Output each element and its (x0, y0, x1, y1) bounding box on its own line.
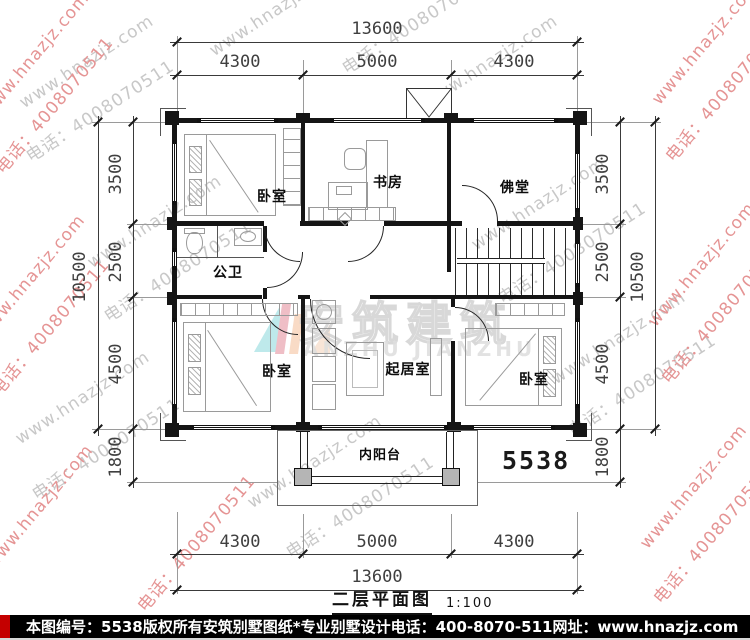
dim-line-right-total (655, 116, 656, 436)
dim-label: 4300 (190, 533, 290, 551)
footer-copyright: 版权所有 (143, 616, 203, 637)
wardrobe (495, 303, 565, 316)
eave-mark (160, 413, 161, 441)
window (575, 240, 580, 287)
window (172, 248, 177, 270)
corner-pier (165, 423, 179, 437)
footer-accent-strip (0, 615, 10, 638)
dim-line-left-segments (133, 116, 134, 488)
wall-hallway-bottom (370, 295, 580, 299)
toilet (186, 232, 203, 254)
wall-hallway-top (172, 221, 264, 226)
wall-pier (296, 113, 310, 123)
wall-bedroom2-living (301, 299, 305, 425)
pillow (543, 336, 556, 364)
corner-pier (165, 111, 179, 125)
eave-mark (160, 108, 161, 136)
door-arc-study (348, 226, 384, 262)
dim-label: 3500 (107, 139, 125, 209)
wall-stair-top (497, 221, 580, 226)
dim-label: 1800 (107, 422, 125, 492)
dim-line-right-segments (620, 116, 621, 488)
room-label-buddhist-hall: 佛堂 (485, 180, 545, 196)
balcony-column (442, 468, 460, 486)
bed-line (205, 322, 206, 412)
room-label-bedroom2: 卧室 (247, 364, 307, 380)
extension-line (303, 60, 304, 116)
window (575, 318, 580, 408)
chair (344, 148, 366, 170)
dim-label: 5000 (327, 533, 427, 551)
dim-label: 4500 (107, 329, 125, 399)
dim-label: 5000 (327, 53, 427, 71)
sofa-seat (312, 384, 336, 410)
dim-label-left-total: 10500 (71, 242, 89, 312)
bed-line (538, 328, 539, 406)
room-label-bathroom: 公卫 (198, 265, 258, 281)
drawing-scale: 1:100 (446, 596, 493, 615)
wall-pier (444, 113, 458, 123)
room-label-balcony: 内阳台 (350, 448, 410, 464)
dim-line-bottom-segments (170, 554, 584, 555)
corner-pier (573, 423, 587, 437)
stair-handrail (457, 258, 545, 264)
plan-number: 5538 (502, 446, 568, 475)
dim-line-top-segments (170, 75, 584, 76)
wall-living-bedroom3 (451, 299, 455, 307)
sink (240, 231, 256, 242)
dim-label: 4300 (464, 53, 564, 71)
balcony-railing (310, 476, 444, 484)
dim-label-right-total: 10500 (629, 242, 647, 312)
toilet-tank (184, 228, 205, 234)
dim-label: 3500 (594, 139, 612, 209)
window (172, 140, 177, 205)
bathroom-partition (217, 226, 218, 258)
dim-label: 4500 (594, 329, 612, 399)
wall-bedroom1-study (301, 123, 305, 226)
sofa-seat (312, 356, 336, 382)
dim-label-top-total: 13600 (327, 20, 427, 38)
eave-mark (566, 108, 592, 109)
pillow (189, 146, 202, 173)
window (172, 318, 177, 408)
dim-label: 4300 (464, 533, 564, 551)
dim-label: 2500 (107, 227, 125, 297)
bathroom-partition (172, 257, 264, 258)
footer-plan-number: 本图编号：5538 (26, 616, 143, 637)
footer-company: 安筑别墅图纸*专业别墅设计 (203, 616, 391, 637)
wall-bathroom-right (263, 288, 267, 299)
bed-line (206, 134, 207, 216)
window (470, 425, 555, 430)
bookcase (366, 140, 388, 208)
balcony-column (294, 468, 312, 486)
watermark-pink-url: www.hnazjz.com (0, 441, 97, 573)
room-label-living-room: 起居室 (375, 362, 441, 378)
floorplan-page: { "title": { "text": "二层平面图", "scale": "… (0, 0, 750, 640)
drawing-title-block: 二层平面图 1:100 (332, 585, 493, 615)
cabinet-row (308, 207, 396, 221)
pillow (188, 367, 201, 395)
eave-mark (591, 413, 592, 441)
lamp (316, 304, 332, 320)
wall-hallway-bottom (172, 295, 262, 299)
footer-bar: 本图编号：5538 版权所有 安筑别墅图纸*专业别墅设计 电话：400-8070… (0, 615, 750, 638)
wall-stair-left (447, 226, 451, 272)
wall-living-bedroom3 (451, 341, 455, 425)
eave-mark (591, 108, 592, 136)
eave-mark (160, 108, 186, 109)
dim-label: 1800 (594, 422, 612, 492)
eave-mark (160, 440, 186, 441)
dim-line-top-total (170, 42, 584, 43)
extension-line (127, 482, 277, 483)
room-label-bedroom1: 卧室 (242, 189, 302, 205)
dim-line-left-total (98, 116, 99, 436)
eave-mark (566, 440, 592, 441)
sofa-seat (312, 328, 336, 354)
room-label-bedroom3: 卧室 (504, 372, 564, 388)
monitor (336, 186, 352, 195)
window (575, 150, 580, 212)
window (197, 118, 278, 123)
dim-label-bottom-total: 13600 (327, 568, 427, 586)
window (330, 118, 425, 123)
door-arc-bathroom (267, 252, 303, 288)
window (470, 118, 558, 123)
corner-pier (573, 111, 587, 125)
drawing-title: 二层平面图 (332, 585, 432, 615)
window (190, 425, 275, 430)
wall-study-hall (447, 123, 451, 221)
pillow (189, 179, 202, 206)
pillow (188, 334, 201, 362)
wardrobe (180, 303, 298, 316)
footer-website: 网址：www.hnazjz.com (552, 616, 738, 637)
dim-label: 4300 (190, 53, 290, 71)
room-label-study: 书房 (358, 175, 418, 191)
footer-phone: 电话：400-8070-511 (391, 616, 553, 637)
dim-label: 2500 (594, 227, 612, 297)
